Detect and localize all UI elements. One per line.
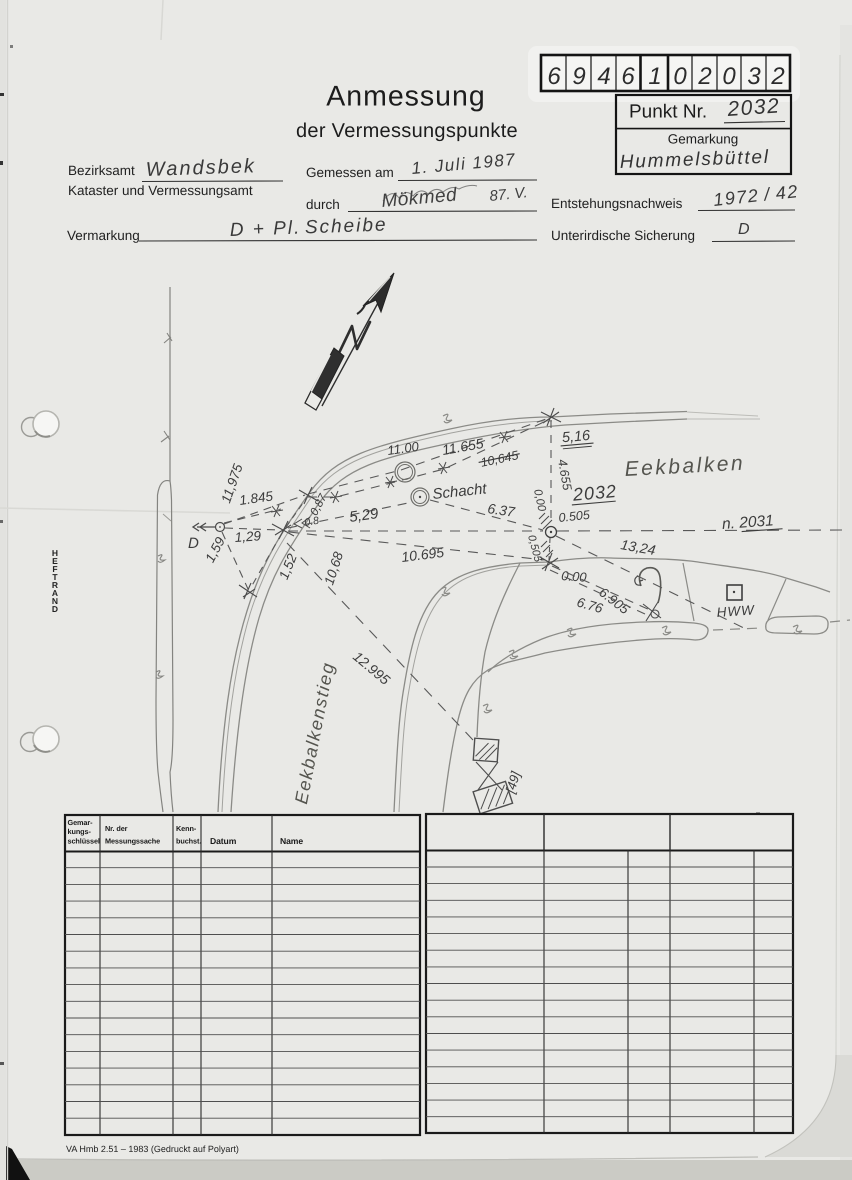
svg-text:Datum: Datum	[210, 836, 237, 846]
svg-text:Messungssache: Messungssache	[105, 837, 160, 846]
svg-text:0: 0	[722, 63, 736, 90]
svg-text:D: D	[52, 604, 58, 614]
svg-text:2: 2	[697, 63, 711, 90]
svg-text:Gemarkung: Gemarkung	[668, 132, 739, 147]
svg-text:D: D	[188, 535, 199, 552]
svg-text:Unterirdische Sicherung: Unterirdische Sicherung	[551, 228, 695, 243]
svg-text:0: 0	[673, 63, 687, 90]
svg-text:2032: 2032	[726, 94, 781, 121]
svg-text:Punkt Nr.: Punkt Nr.	[629, 102, 707, 123]
svg-text:schlüssel: schlüssel	[68, 837, 100, 846]
svg-text:6: 6	[621, 63, 635, 90]
svg-text:Gemar-: Gemar-	[68, 818, 94, 827]
svg-text:Gemessen am: Gemessen am	[306, 165, 394, 180]
svg-text:Name: Name	[280, 836, 303, 846]
svg-text:Vermarkung: Vermarkung	[67, 228, 140, 243]
svg-text:2: 2	[770, 63, 784, 90]
svg-text:kungs-: kungs-	[68, 827, 92, 836]
svg-text:4: 4	[597, 63, 610, 90]
svg-text:Nr. der: Nr. der	[105, 824, 128, 833]
svg-text:1: 1	[648, 63, 661, 90]
svg-text:3: 3	[747, 63, 761, 90]
svg-text:Entstehungsnachweis: Entstehungsnachweis	[551, 196, 683, 211]
svg-text:6: 6	[547, 63, 561, 90]
svg-text:buchst.: buchst.	[176, 837, 201, 846]
svg-text:Bezirksamt: Bezirksamt	[68, 163, 135, 178]
svg-text:HWW: HWW	[716, 602, 755, 620]
svg-text:VA Hmb 2.51 – 1983 (Gedruckt a: VA Hmb 2.51 – 1983 (Gedruckt auf Polyart…	[66, 1144, 239, 1154]
svg-text:D: D	[738, 221, 750, 238]
svg-text:durch: durch	[306, 197, 340, 212]
svg-text:9: 9	[572, 63, 585, 90]
svg-text:der Vermessungspunkte: der Vermessungspunkte	[296, 120, 518, 142]
svg-text:0.8: 0.8	[303, 515, 320, 529]
svg-text:Wandsbek: Wandsbek	[145, 155, 256, 181]
svg-text:Kenn-: Kenn-	[176, 824, 197, 833]
svg-text:1,29: 1,29	[234, 528, 262, 545]
svg-text:Anmessung: Anmessung	[326, 81, 486, 113]
svg-text:Kataster und Vermessungsamt: Kataster und Vermessungsamt	[68, 183, 253, 198]
